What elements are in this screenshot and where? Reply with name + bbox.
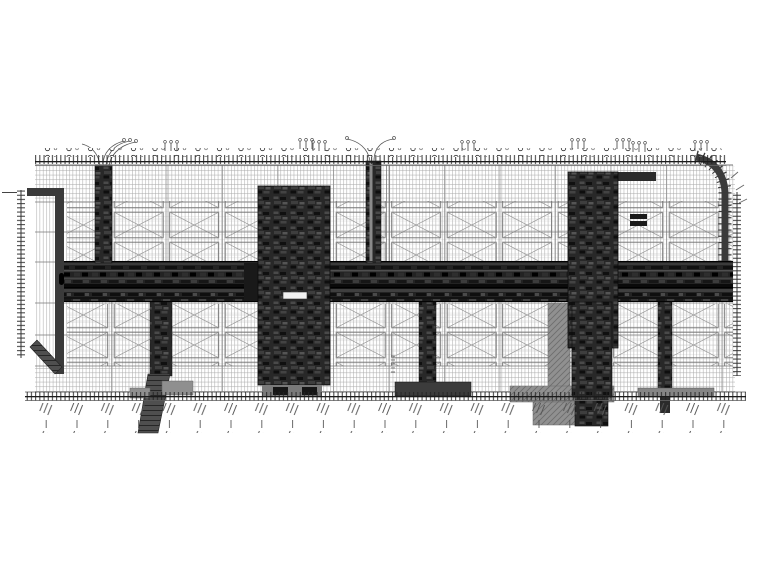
bottom-annotation-labels [28, 403, 746, 433]
plan-label-pill [630, 221, 647, 226]
bottom-dimension-line [25, 392, 746, 433]
right-dimension-column [733, 192, 741, 376]
cad-plan-svg [0, 0, 760, 570]
plan-label-pill [630, 214, 647, 219]
main-corridor [62, 261, 733, 302]
corridor-label-pill [283, 292, 307, 299]
drawing-canvas [0, 0, 760, 570]
xpanel-band-upper [67, 201, 733, 262]
grid-bubbles-row [38, 148, 722, 157]
left-dimension-column [17, 190, 25, 358]
